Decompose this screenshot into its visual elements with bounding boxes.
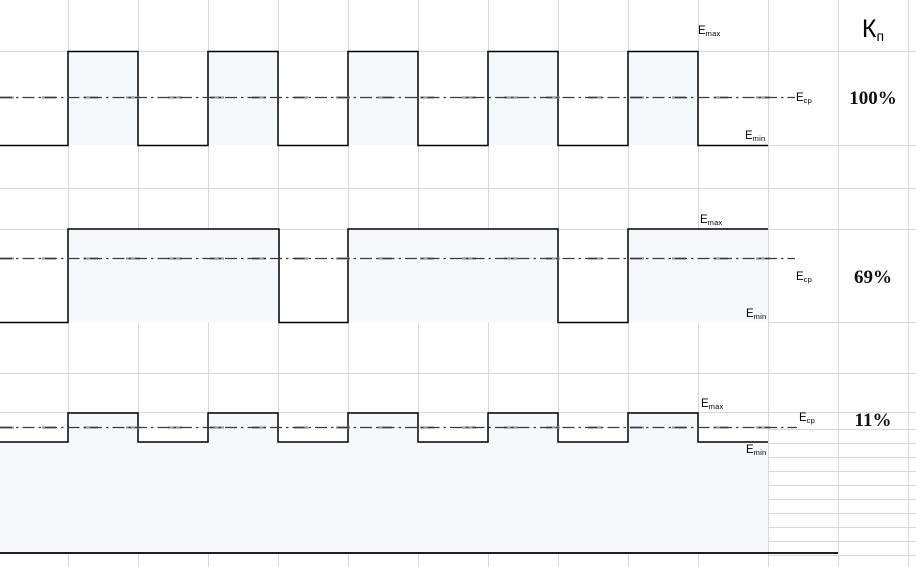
emax-label-2: Emax bbox=[700, 213, 722, 230]
emax-label-3: Emax bbox=[701, 397, 723, 414]
ecp-label-3: Eср bbox=[799, 411, 815, 428]
emin-label-1: Emin bbox=[745, 129, 765, 146]
emin-label-2: Emin bbox=[746, 307, 766, 324]
waveform-11 bbox=[0, 413, 768, 553]
ecp-label-1: Eср bbox=[796, 91, 812, 108]
spreadsheet-canvas: Emax Eср Emin Emax Eср Emin Emax Eср Emi… bbox=[0, 0, 916, 567]
kp-value-69: 69% bbox=[838, 267, 908, 289]
kp-value-11: 11% bbox=[838, 410, 908, 432]
kp-column-header: Кп bbox=[838, 14, 908, 51]
emax-label-1: Emax bbox=[698, 24, 720, 41]
emin-label-3: Emin bbox=[746, 443, 766, 460]
waveform-diagram bbox=[0, 0, 916, 567]
ecp-label-2: Eср bbox=[796, 270, 812, 287]
kp-value-100: 100% bbox=[838, 88, 908, 110]
waveform-69 bbox=[0, 229, 768, 323]
